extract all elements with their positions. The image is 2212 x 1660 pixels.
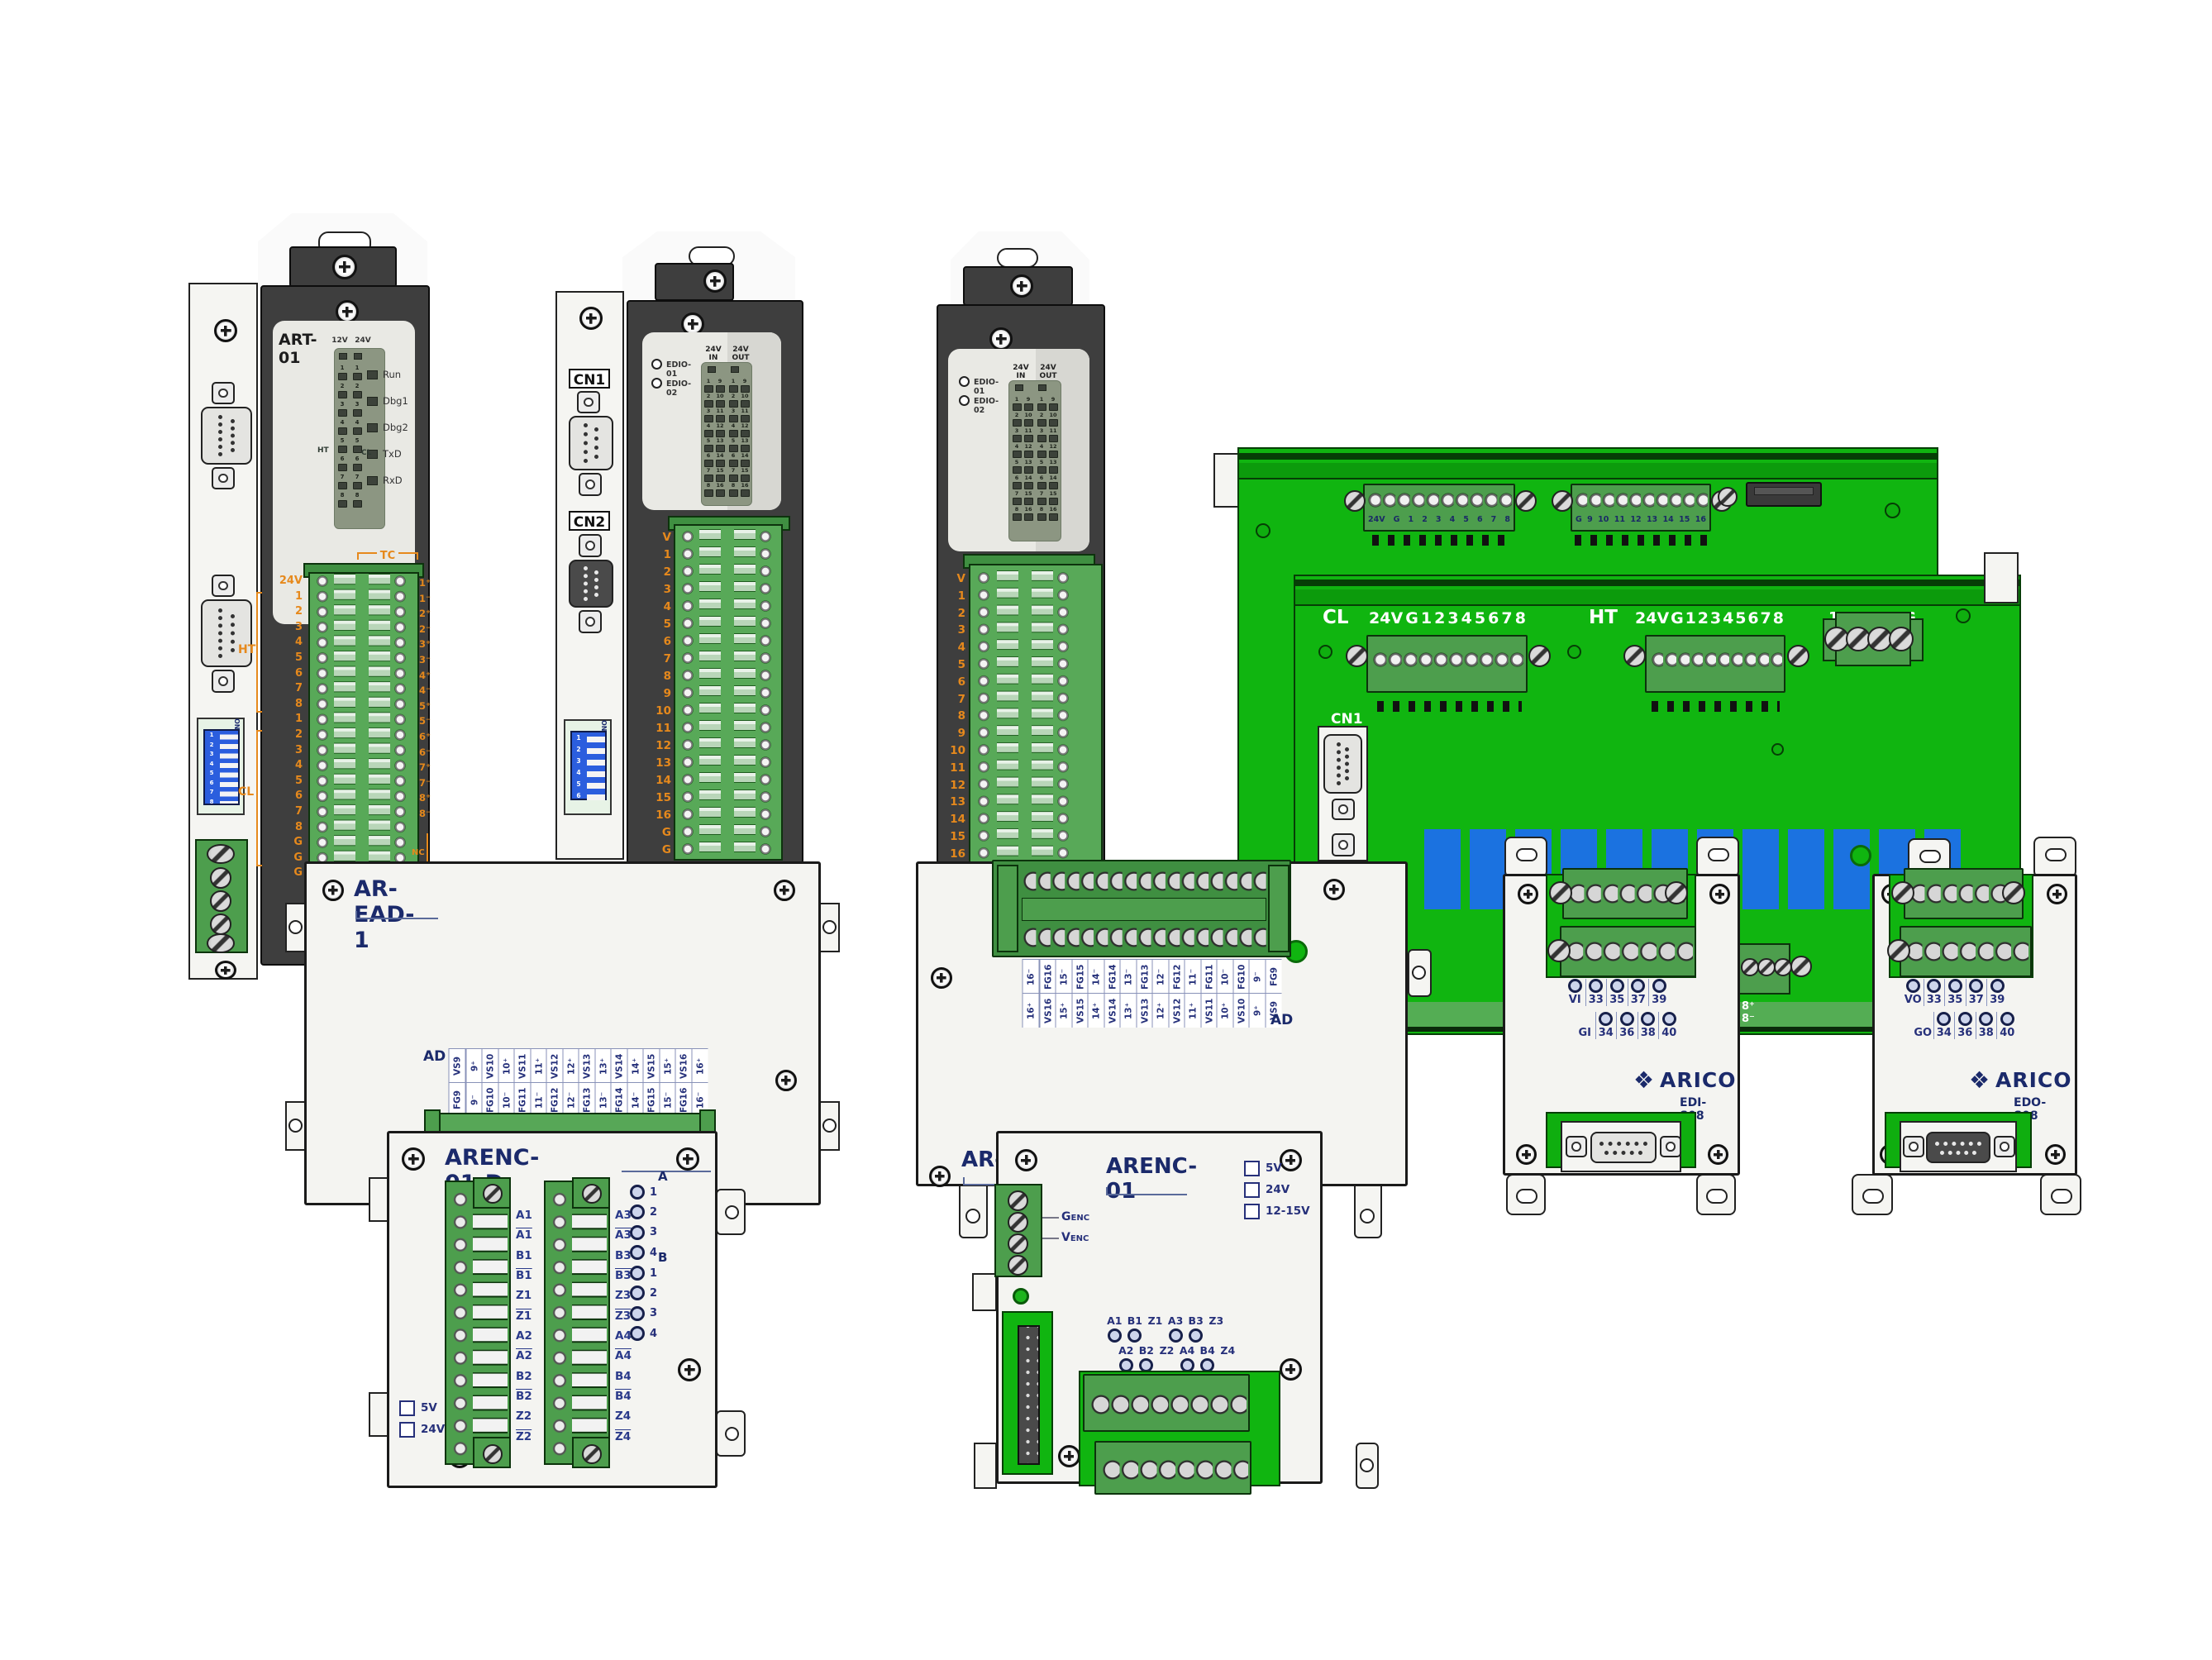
terminal-label: 13 bbox=[638, 755, 671, 772]
led-cell: 6 bbox=[703, 452, 714, 467]
strip-labels: V12345678910111213141516 bbox=[932, 570, 965, 863]
dip-on-label: ON bbox=[600, 720, 608, 737]
ear-hole bbox=[2045, 848, 2067, 861]
enc-terminal-label: Z1 bbox=[516, 1286, 541, 1305]
edio2-label: EDIO-02 bbox=[666, 379, 691, 398]
board-hole bbox=[1956, 608, 1971, 623]
terminal-label: 7⁻ bbox=[419, 775, 441, 791]
channel-led: 3 bbox=[630, 1223, 663, 1243]
din-rail-line bbox=[1295, 580, 2019, 586]
ad-cell: 15⁻ bbox=[660, 1082, 676, 1117]
io-label: 24V bbox=[1635, 609, 1669, 627]
enc-labels-1: A1A1B1B1Z1Z1A2A2B2B2Z2Z2 bbox=[516, 1205, 541, 1447]
led-cell: 1 bbox=[703, 378, 714, 393]
io-label: G bbox=[1405, 609, 1418, 627]
ad-cell: 9⁻ bbox=[466, 1082, 483, 1117]
pin-label: 36 bbox=[1954, 1012, 1976, 1039]
slot-screw bbox=[483, 1444, 503, 1464]
led-cell: 9 bbox=[739, 378, 751, 393]
screw-column bbox=[1055, 570, 1071, 863]
slot-screw bbox=[1549, 881, 1572, 904]
tb-label: 1 bbox=[1409, 515, 1414, 524]
signal-label: Z1 bbox=[1145, 1314, 1166, 1343]
led-cell: 1 bbox=[1036, 396, 1047, 412]
led-col: 910111213141516 bbox=[739, 378, 751, 497]
terminal-label: 4 bbox=[638, 599, 671, 616]
screw-icon bbox=[678, 1358, 701, 1381]
dip-number: 1 bbox=[206, 731, 217, 741]
hex-nut bbox=[579, 610, 602, 633]
smd-row bbox=[1377, 701, 1522, 712]
led-col: 12345678 bbox=[727, 378, 739, 497]
pin-label: 34 bbox=[1933, 1012, 1955, 1039]
terminal-label: V bbox=[932, 570, 965, 588]
screw-icon bbox=[402, 1147, 425, 1171]
pin-row-2: GO34363840 bbox=[1913, 1012, 2018, 1039]
dip-number: 5 bbox=[573, 779, 584, 790]
board-hole bbox=[1885, 503, 1900, 518]
ear-hole bbox=[1360, 1458, 1374, 1472]
ear-hole bbox=[1919, 850, 1941, 863]
led-cell: 1 bbox=[1011, 396, 1023, 412]
cl-terminal-block bbox=[1366, 635, 1528, 693]
terminal-label: 1 bbox=[266, 589, 303, 605]
dip-number: 8 bbox=[206, 798, 217, 808]
terminal-label: 7 bbox=[932, 691, 965, 708]
ear-hole bbox=[1862, 1189, 1884, 1204]
in-24v-label: 24V bbox=[1008, 364, 1033, 372]
terminal-label: G bbox=[638, 824, 671, 842]
module-title: ARENC-01 bbox=[1106, 1154, 1197, 1204]
dip-sliders[interactable] bbox=[587, 734, 605, 800]
ear-hole bbox=[1412, 966, 1426, 980]
ad-cell: FG14 bbox=[1104, 959, 1121, 995]
io-label: 24V bbox=[1369, 609, 1403, 627]
pin-label: 38 bbox=[1976, 1012, 1997, 1039]
led-cell: 7 bbox=[727, 467, 739, 482]
io-label: 6 bbox=[1488, 609, 1499, 627]
screw-icon bbox=[579, 307, 603, 330]
ad-cell: 13⁻ bbox=[1120, 959, 1137, 995]
ad-cell: 14⁺ bbox=[627, 1048, 644, 1084]
tb-label: 12 bbox=[1630, 515, 1641, 524]
mount-tab bbox=[1984, 552, 2019, 603]
led-cell: 13 bbox=[739, 437, 751, 452]
dip-switch[interactable]: 12345678 bbox=[203, 729, 240, 805]
screw-column bbox=[679, 529, 696, 859]
ad-cell: FG13 bbox=[579, 1082, 595, 1117]
terminal-label: 8 bbox=[932, 708, 965, 725]
ad-cell: VS16 bbox=[1040, 993, 1056, 1028]
tb-label: G bbox=[1394, 515, 1400, 524]
terminal-label: 3 bbox=[266, 620, 303, 636]
screw-icon bbox=[931, 967, 952, 989]
led-cell: 7 bbox=[350, 474, 364, 492]
terminal-label: 6 bbox=[266, 789, 303, 804]
dip-number: 3 bbox=[206, 750, 217, 760]
ad-cell: 14⁻ bbox=[627, 1082, 644, 1117]
slot-screw bbox=[1790, 956, 1812, 977]
terminal-label: 2 bbox=[266, 604, 303, 620]
led-cell: 9 bbox=[1023, 396, 1034, 412]
signal-label: Z3 bbox=[1206, 1314, 1227, 1343]
enc-terminal-label: A2 bbox=[516, 1326, 541, 1346]
terminal-label: 2 bbox=[638, 564, 671, 581]
slot-screw bbox=[1528, 645, 1551, 667]
led-cell: 8 bbox=[1036, 506, 1047, 522]
cn2-db9-connector bbox=[569, 560, 613, 608]
channel-led: 1 bbox=[630, 1182, 663, 1202]
tb-label: 4 bbox=[1450, 515, 1456, 524]
terminal-label: 12 bbox=[932, 777, 965, 794]
dip-number: 4 bbox=[573, 767, 584, 779]
tb-label: 16 bbox=[1695, 515, 1706, 524]
hex-nut bbox=[212, 670, 235, 693]
dip-numbers: 123456 bbox=[573, 732, 584, 802]
pin-label: VI bbox=[1565, 979, 1585, 1006]
led-cell: 11 bbox=[739, 408, 751, 422]
terminal-label: 15 bbox=[638, 789, 671, 807]
led-cell: 3 bbox=[1036, 427, 1047, 443]
hex-nut bbox=[1332, 799, 1355, 820]
screw-row bbox=[1022, 866, 1266, 896]
enc-block-2 bbox=[544, 1181, 610, 1465]
ad-cell: FG13 bbox=[1137, 959, 1153, 995]
ad-cell: 10⁺ bbox=[1217, 993, 1233, 1028]
ad-cell: 12⁻ bbox=[1152, 959, 1169, 995]
clamp-column bbox=[1032, 570, 1053, 863]
enc-terminal-label: A1 bbox=[516, 1205, 541, 1225]
led-cell: 16 bbox=[1047, 506, 1059, 522]
terminal-screw bbox=[210, 890, 231, 912]
ad-cell: 16⁻ bbox=[1023, 959, 1040, 995]
led-cell: 13 bbox=[1047, 459, 1059, 475]
venc-line bbox=[1042, 1238, 1059, 1239]
voltage-checkbox: 5V bbox=[399, 1397, 465, 1419]
led-cell: 2 bbox=[1011, 412, 1023, 427]
dip-number: 6 bbox=[206, 779, 217, 789]
screw-column bbox=[551, 1189, 569, 1462]
led-cell: 7 bbox=[703, 467, 714, 482]
screw-icon bbox=[929, 1166, 951, 1187]
din-rail-line bbox=[1239, 453, 1937, 460]
ht-section-label: HT bbox=[1589, 607, 1618, 628]
board-hole bbox=[1318, 645, 1332, 659]
led-cell: 10 bbox=[714, 393, 726, 408]
tb-label: 15 bbox=[1679, 515, 1690, 524]
terminal-label: 1 bbox=[932, 588, 965, 605]
ear-hole bbox=[822, 1119, 837, 1133]
terminal-label: 3 bbox=[638, 581, 671, 599]
io-label: 2 bbox=[1698, 609, 1709, 627]
slot-screw bbox=[1344, 490, 1366, 512]
led-cell: 14 bbox=[714, 452, 726, 467]
ad-label: AD bbox=[423, 1048, 446, 1065]
hex-nut bbox=[212, 467, 235, 489]
ad-cell: VS10 bbox=[1233, 993, 1250, 1028]
screw-icon bbox=[2045, 1144, 2066, 1165]
slot-screw bbox=[1787, 645, 1809, 667]
screw-icon bbox=[2047, 884, 2067, 904]
screw-icon bbox=[1015, 1149, 1037, 1171]
ad-cell: 13⁺ bbox=[595, 1048, 612, 1084]
board-hole bbox=[1567, 645, 1581, 659]
slot-screw bbox=[1547, 939, 1571, 962]
io-label: 2 bbox=[1434, 609, 1445, 627]
terminal-label: 2 bbox=[266, 727, 303, 743]
ad-cell: VS16 bbox=[675, 1048, 692, 1084]
led-cell: 7 bbox=[336, 474, 349, 492]
signal-label: A2 bbox=[1116, 1344, 1137, 1372]
dip-number: 7 bbox=[206, 788, 217, 798]
edio2-led bbox=[651, 378, 662, 389]
tb-label: 10 bbox=[1598, 515, 1609, 524]
led-cell: 6 bbox=[727, 452, 739, 467]
hardware-diagram-canvas: 12345678 ON ART-01 12V 24V 12345678 1234… bbox=[0, 0, 2212, 1660]
board-hole bbox=[1256, 523, 1270, 538]
cn1-label: CN1 bbox=[1331, 711, 1363, 727]
terminal-label: 3⁺ bbox=[419, 637, 441, 652]
led-cell: 4 bbox=[350, 419, 364, 437]
edio1-led bbox=[959, 376, 970, 387]
led-cell: 15 bbox=[1047, 490, 1059, 506]
signal-label: A3 bbox=[1166, 1314, 1186, 1343]
ad-cell: VS10 bbox=[482, 1048, 498, 1084]
tb-label: 24V bbox=[1368, 515, 1385, 524]
led-cell: 8 bbox=[703, 482, 714, 497]
ad-cell: FG9 bbox=[1266, 959, 1282, 995]
signal-label: B3 bbox=[1185, 1314, 1206, 1343]
terminal-label: 4 bbox=[266, 635, 303, 651]
led-cell: 8 bbox=[336, 492, 349, 510]
pin-row-1: VO33353739 bbox=[1903, 979, 2008, 1006]
enc-terminal-label: Z2 bbox=[516, 1406, 541, 1426]
terminal-label: 13 bbox=[932, 794, 965, 811]
terminal-label: 24V bbox=[266, 574, 303, 589]
led-cell: 5 bbox=[1036, 459, 1047, 475]
enc-terminal-label: B1 bbox=[516, 1266, 541, 1286]
genc-label: GENC bbox=[1061, 1210, 1089, 1224]
terminal-label: 1 bbox=[266, 712, 303, 727]
led-cell: 14 bbox=[1047, 475, 1059, 490]
cl-bracket bbox=[256, 730, 262, 866]
tc-label: TC bbox=[380, 550, 395, 562]
ad-cell: 12⁺ bbox=[1152, 993, 1169, 1028]
screw-row bbox=[1089, 1384, 1247, 1425]
hex-nut bbox=[1903, 1136, 1924, 1157]
terminal-label: 5 bbox=[638, 616, 671, 633]
back-terminal-block-1: 24VG12345678 bbox=[1363, 484, 1515, 532]
dip-number: 5 bbox=[206, 769, 217, 779]
terminal-label: 5⁺ bbox=[419, 699, 441, 714]
ad-cell: 16⁺ bbox=[692, 1048, 708, 1084]
edio1-label: EDIO-01 bbox=[974, 378, 999, 396]
hex-nut bbox=[1660, 1136, 1681, 1157]
slot-screw bbox=[1552, 490, 1573, 512]
clamp-column bbox=[334, 574, 355, 881]
led-cell: 3 bbox=[727, 408, 739, 422]
voltage-checks: 5V24V bbox=[399, 1397, 465, 1440]
terminal-label: 8 bbox=[638, 668, 671, 685]
block-tab bbox=[572, 1177, 610, 1209]
terminal-label: 14 bbox=[638, 772, 671, 789]
screw-row bbox=[1565, 933, 1693, 971]
enc-terminal-label: Z2 bbox=[516, 1427, 541, 1447]
terminal-label: 3⁻ bbox=[419, 652, 441, 668]
tb-labels: 24VG12345678 bbox=[1368, 515, 1510, 524]
terminal-screw bbox=[1008, 1212, 1028, 1233]
terminal-label: 5⁻ bbox=[419, 713, 441, 729]
led-cell: 3 bbox=[1011, 427, 1023, 443]
ear-hole bbox=[1360, 1209, 1375, 1224]
screw-column bbox=[975, 570, 992, 863]
hex-nut bbox=[212, 575, 235, 597]
db9-connector bbox=[1590, 1132, 1657, 1163]
clamp-column bbox=[369, 574, 390, 881]
db9-connector bbox=[1926, 1132, 1990, 1163]
power-led bbox=[1013, 1288, 1029, 1305]
led-cell: 2 bbox=[703, 393, 714, 408]
ad-label: AD bbox=[1270, 1012, 1293, 1028]
ear-hole bbox=[725, 1205, 739, 1219]
volt-12v-label: 12V bbox=[329, 336, 350, 345]
back-terminal-block-2: G910111213141516 bbox=[1571, 484, 1711, 532]
power-terminal bbox=[195, 839, 248, 953]
terminal-label: 6⁺ bbox=[419, 729, 441, 745]
terminal-label: 9 bbox=[638, 685, 671, 703]
enc-terminal-label: Z4 bbox=[615, 1427, 640, 1447]
power-led bbox=[339, 353, 347, 360]
led-col: 910111213141516 bbox=[1023, 396, 1034, 522]
cl-group-label: CL bbox=[238, 785, 254, 799]
cl-section-label: CL bbox=[1323, 607, 1349, 628]
ad-cell: 15⁺ bbox=[1056, 993, 1072, 1028]
io-label: 7 bbox=[1501, 609, 1512, 627]
block-tab bbox=[572, 1437, 610, 1468]
signal-label: B2 bbox=[1137, 1344, 1157, 1372]
matrix-ht-label: HT bbox=[317, 446, 329, 455]
io-label: 6 bbox=[1747, 609, 1758, 627]
edge-8-labels: 8⁺ 8⁻ bbox=[1742, 1000, 1755, 1025]
voltage-checks: 5V24V12-15V bbox=[1244, 1157, 1318, 1222]
status-led: TxD bbox=[367, 441, 415, 467]
pin-label: 34 bbox=[1595, 1012, 1617, 1039]
ht-bracket bbox=[256, 592, 262, 713]
terminal-label: 6 bbox=[266, 666, 303, 682]
screw-icon bbox=[215, 961, 236, 980]
led-cell: 1 bbox=[350, 365, 364, 383]
terminal-label: 1⁺ bbox=[419, 575, 441, 591]
io-label: 5 bbox=[1735, 609, 1746, 627]
ad-cell: VS15 bbox=[1072, 993, 1089, 1028]
terminal-label: 6 bbox=[638, 633, 671, 651]
led-cell: 6 bbox=[1036, 475, 1047, 490]
ear-hole bbox=[288, 1119, 303, 1133]
screw-row bbox=[1574, 487, 1708, 513]
pwr-screw bbox=[1889, 627, 1914, 651]
terminal-label: 16 bbox=[638, 807, 671, 824]
led-cell: 12 bbox=[739, 422, 751, 437]
enc-terminal-label: Z1 bbox=[516, 1306, 541, 1326]
cn1-db9-connector bbox=[569, 416, 613, 470]
led-col-cl: 12345678 bbox=[350, 365, 364, 510]
channel-led: 1 bbox=[630, 1263, 663, 1283]
ad-cell: VS9 bbox=[449, 1048, 466, 1084]
power-led bbox=[1038, 384, 1046, 391]
ht-terminal-block bbox=[1645, 635, 1785, 693]
ad-cell: FG16 bbox=[675, 1082, 692, 1117]
dual-row-connector bbox=[992, 860, 1291, 957]
terminal-label: 7⁺ bbox=[419, 760, 441, 775]
io-label: 8 bbox=[1773, 609, 1784, 627]
mount-ear bbox=[369, 1177, 389, 1222]
signal-label: B4 bbox=[1197, 1344, 1218, 1372]
ear-hole bbox=[288, 920, 303, 934]
led-cell: 2 bbox=[1036, 412, 1047, 427]
tb-label: 9 bbox=[1587, 515, 1593, 524]
out-label: OUT bbox=[727, 354, 754, 362]
screw-icon bbox=[775, 1070, 797, 1091]
led-cell: 10 bbox=[1023, 412, 1034, 427]
ear-hole bbox=[965, 1209, 980, 1224]
ad-cell: VS14 bbox=[611, 1048, 627, 1084]
io-label: 3 bbox=[1710, 609, 1721, 627]
tb-label: 13 bbox=[1647, 515, 1657, 524]
terminal-label: 6 bbox=[932, 674, 965, 691]
edio1-label: EDIO-01 bbox=[666, 360, 691, 379]
channel-led: 2 bbox=[630, 1283, 663, 1303]
pin-label: 40 bbox=[1658, 1012, 1680, 1039]
led-cell: 16 bbox=[1023, 506, 1034, 522]
terminal-screw bbox=[210, 913, 231, 935]
dip-sliders[interactable] bbox=[220, 732, 238, 804]
led-cell: 9 bbox=[1047, 396, 1059, 412]
dip-number: 1 bbox=[573, 732, 584, 744]
terminal-label: V bbox=[638, 529, 671, 546]
slot-screw bbox=[582, 1184, 602, 1204]
tb-label: 7 bbox=[1491, 515, 1497, 524]
hex-nut bbox=[1994, 1136, 2015, 1157]
enc-terminal-label: B4 bbox=[615, 1386, 640, 1406]
screw-column bbox=[392, 574, 408, 881]
screw-icon bbox=[703, 270, 727, 293]
ad-cell: FG12 bbox=[546, 1082, 563, 1117]
genc-line bbox=[1042, 1217, 1059, 1219]
tb-label: 11 bbox=[1614, 515, 1625, 524]
status-led: Run bbox=[367, 361, 415, 388]
in-label: IN bbox=[701, 354, 726, 362]
pin-label: 38 bbox=[1638, 1012, 1659, 1039]
volt-24v-label: 24V bbox=[352, 336, 374, 345]
led-cell: 13 bbox=[714, 437, 726, 452]
ad-cell: VS14 bbox=[1104, 993, 1121, 1028]
bracket-line bbox=[398, 552, 418, 560]
tb-label: 6 bbox=[1477, 515, 1483, 524]
io-label: 7 bbox=[1761, 609, 1771, 627]
terminal-label: 4 bbox=[266, 758, 303, 774]
ear-hole bbox=[725, 1427, 739, 1441]
terminal-block-2 bbox=[1900, 926, 2032, 977]
smd-row bbox=[1372, 535, 1513, 546]
arico-logo-icon: ❖ bbox=[1969, 1066, 1990, 1094]
signal-label: Z4 bbox=[1218, 1344, 1238, 1372]
led-cell: 5 bbox=[336, 437, 349, 456]
terminal-label: G bbox=[266, 835, 303, 851]
dip-switch[interactable]: 123456 bbox=[570, 731, 607, 800]
terminal-label: 6⁻ bbox=[419, 745, 441, 761]
terminal-screw bbox=[1757, 958, 1776, 976]
led-col: 12345678 bbox=[1011, 396, 1023, 522]
